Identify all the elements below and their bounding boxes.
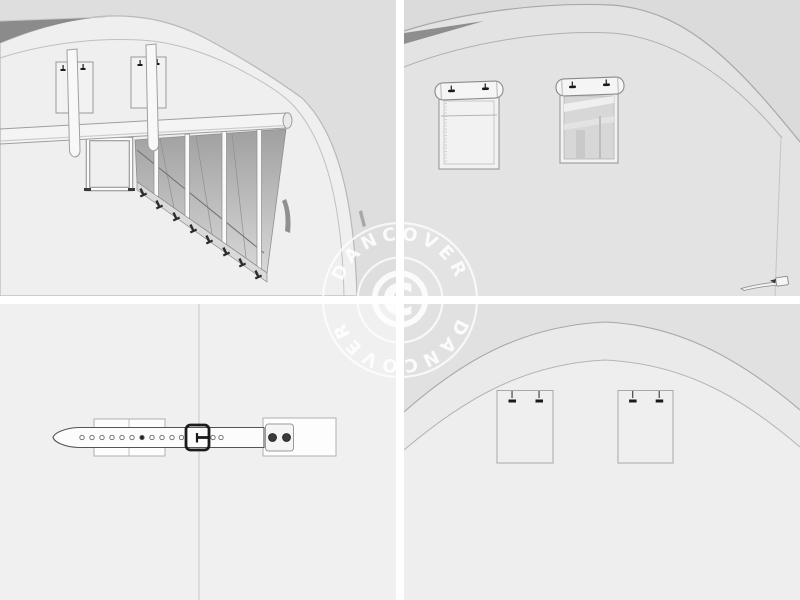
- window-flap-right: [618, 391, 673, 464]
- product-image-collage: DANCOVER DANCOVER ©: [0, 0, 800, 600]
- bar-end-cap: [283, 113, 292, 129]
- panel-tent-interior-corner-view: [0, 0, 396, 296]
- rivet: [283, 434, 291, 442]
- rolled-cover-cylinder: [435, 81, 504, 100]
- panel-side-wall-roll-up-windows: [404, 0, 800, 296]
- roll-up-window-open: [556, 77, 625, 163]
- roll-up-window-closed: [435, 81, 504, 169]
- strap-buckle-drawing: [0, 304, 396, 600]
- background: [0, 304, 396, 600]
- panel-gable-end-window-flaps: [404, 304, 800, 600]
- gable-end-drawing: [404, 304, 800, 600]
- panel-strap-buckle-detail: [0, 304, 396, 600]
- window-flap-left: [497, 391, 553, 464]
- tent-interior-drawing: [0, 0, 396, 296]
- strap-mount-plate: [263, 418, 336, 456]
- side-wall-drawing: [404, 0, 800, 296]
- rolled-cover-cylinder: [556, 77, 625, 96]
- strap: [53, 428, 264, 448]
- rivet: [269, 434, 277, 442]
- strap-hole-selected: [140, 435, 144, 439]
